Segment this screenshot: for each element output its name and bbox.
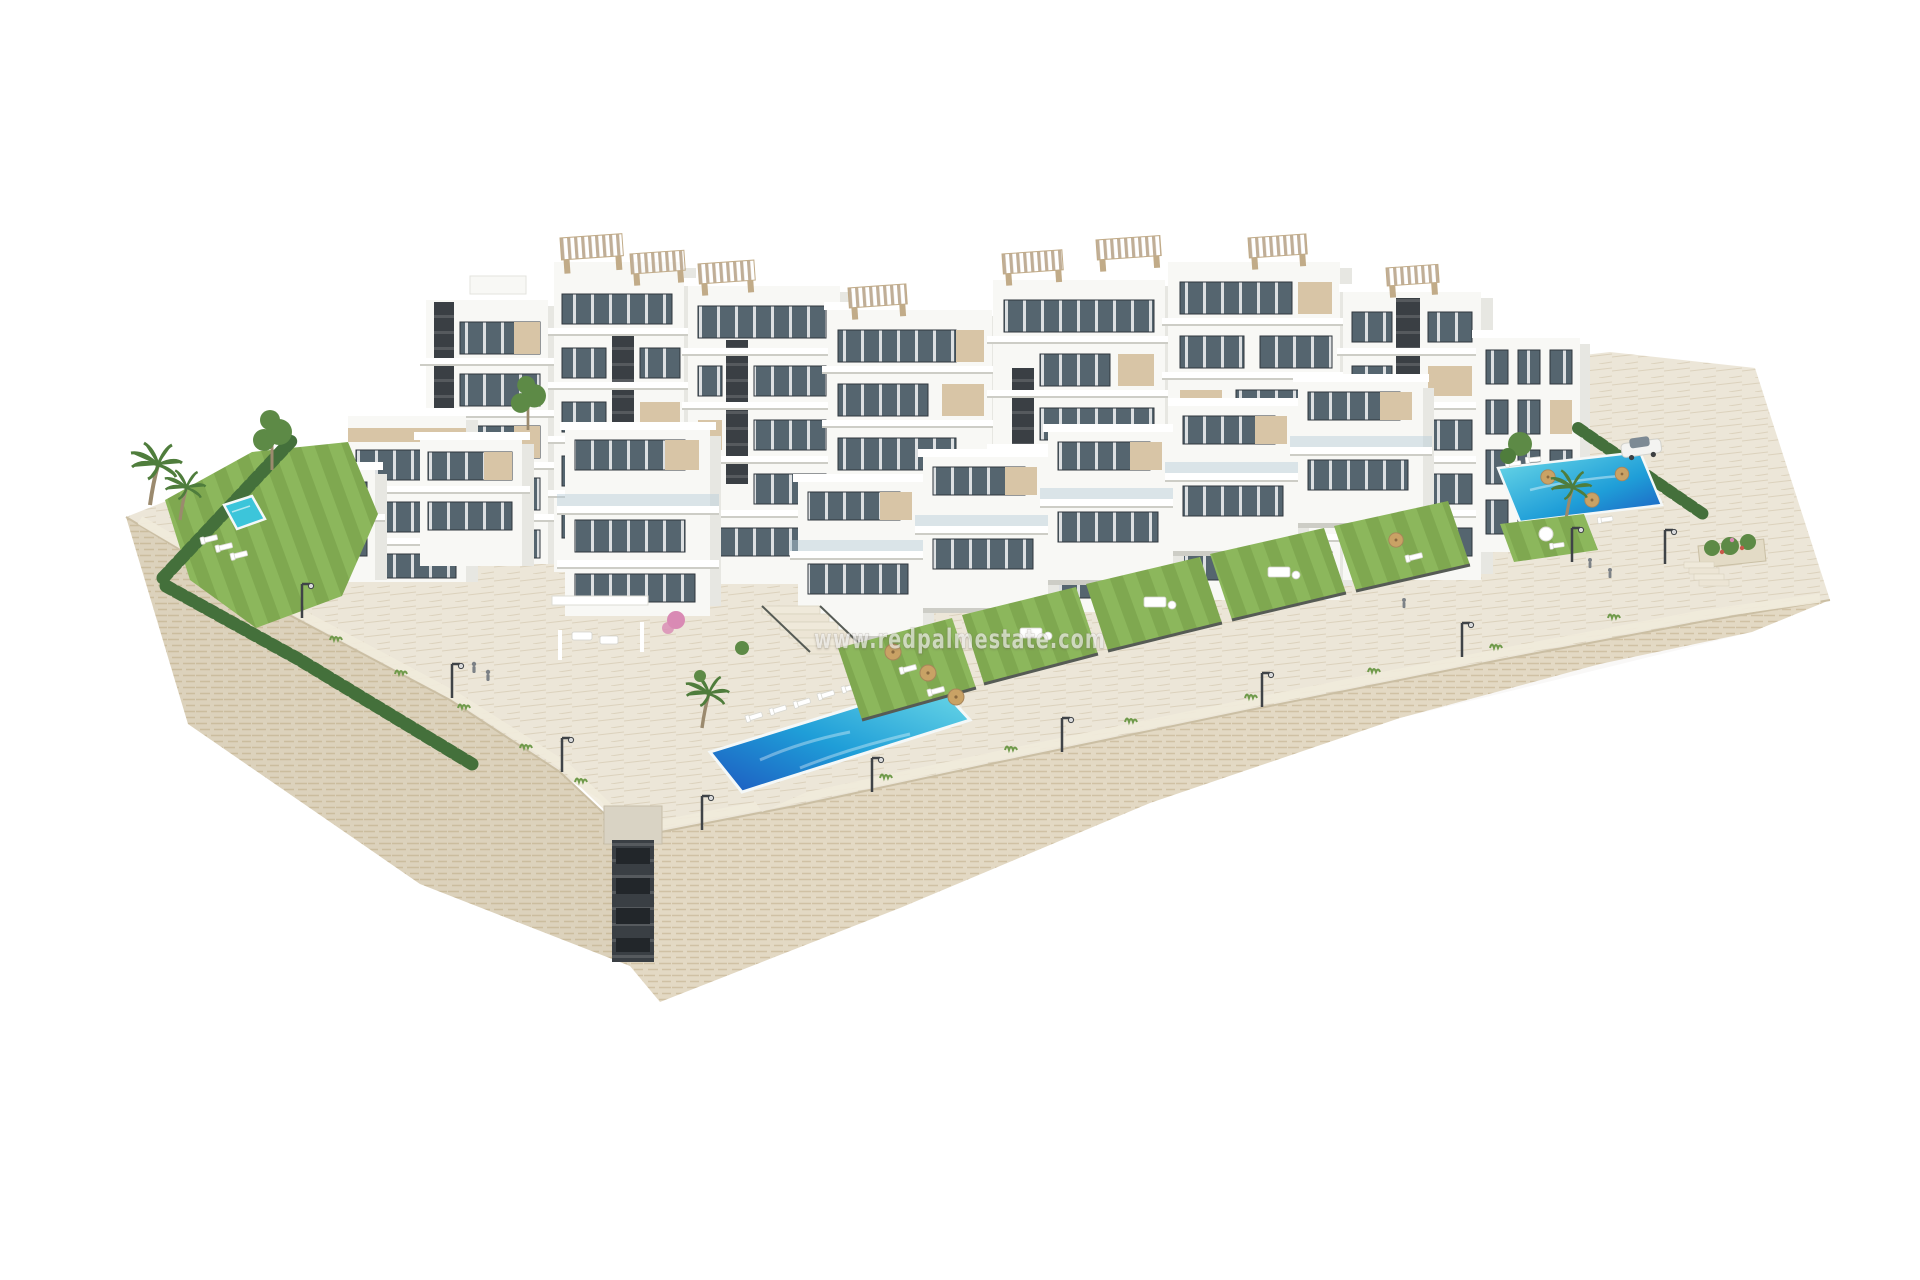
roof-pergola [1096,236,1162,272]
scene-svg: www.redpalmestate.com [0,0,1920,1280]
villa-v3 [1040,424,1184,585]
villa-v5 [1290,374,1434,528]
shrub [694,670,706,682]
tree [1500,448,1516,464]
villa-a3 [412,432,534,566]
render-canvas: www.redpalmestate.com [0,0,1920,1280]
basement-shaft [604,806,662,962]
villa-v2 [915,449,1059,613]
watermark-text: www.redpalmestate.com [814,624,1106,655]
shrub [735,641,749,655]
villa-v4 [1165,398,1309,556]
villa-v0 [557,422,721,616]
